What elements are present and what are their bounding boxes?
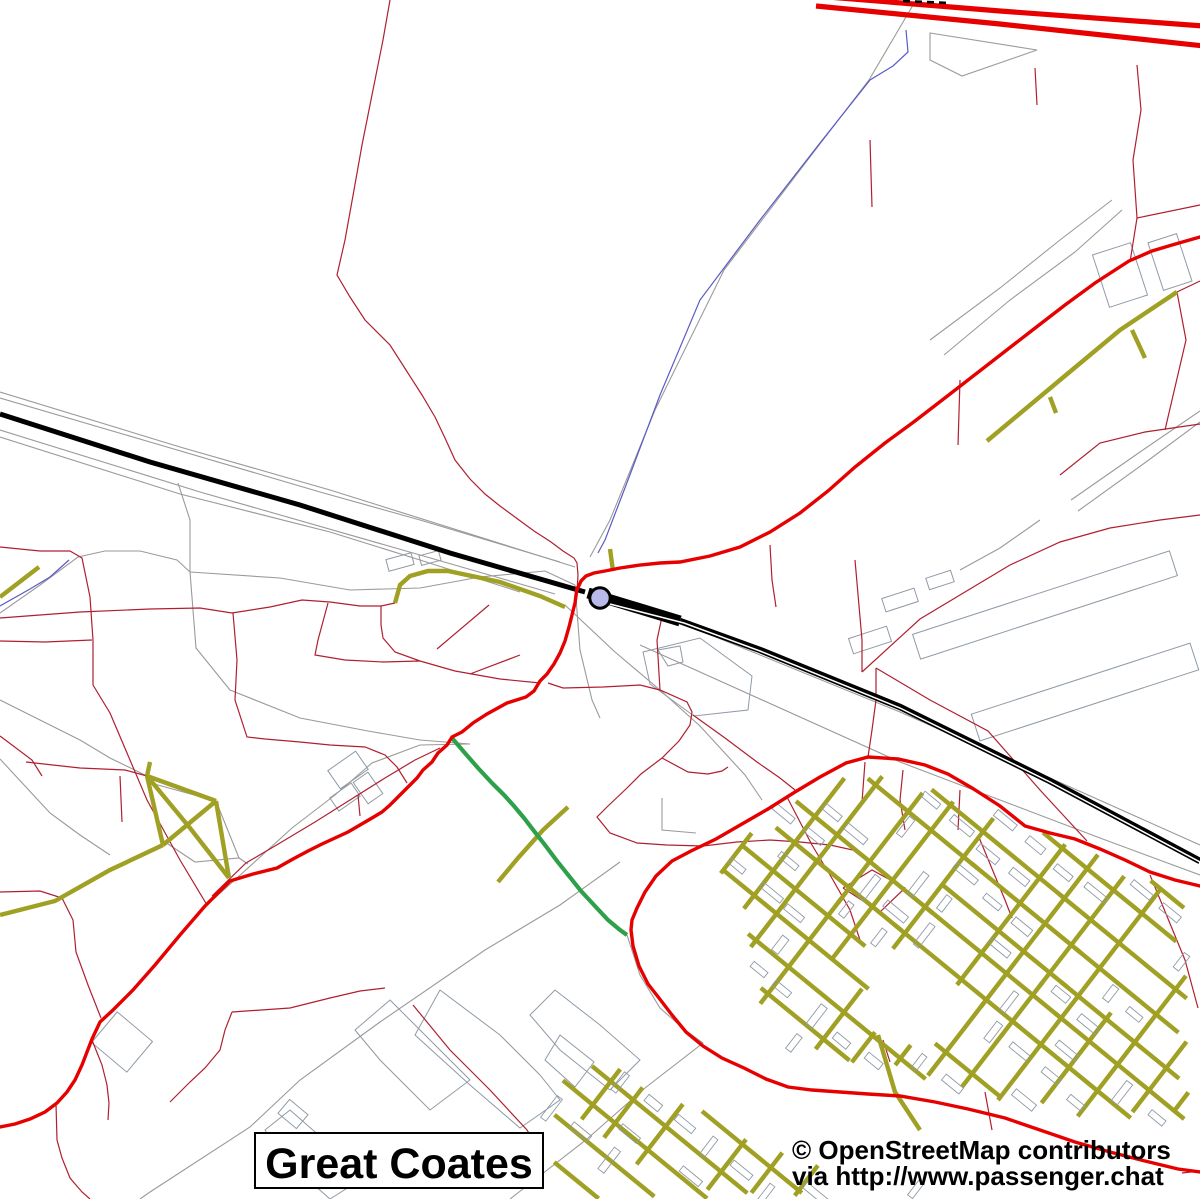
svg-text:via http://www.passenger.chat: via http://www.passenger.chat (792, 1161, 1164, 1191)
svg-text:Great Coates: Great Coates (265, 1140, 533, 1188)
